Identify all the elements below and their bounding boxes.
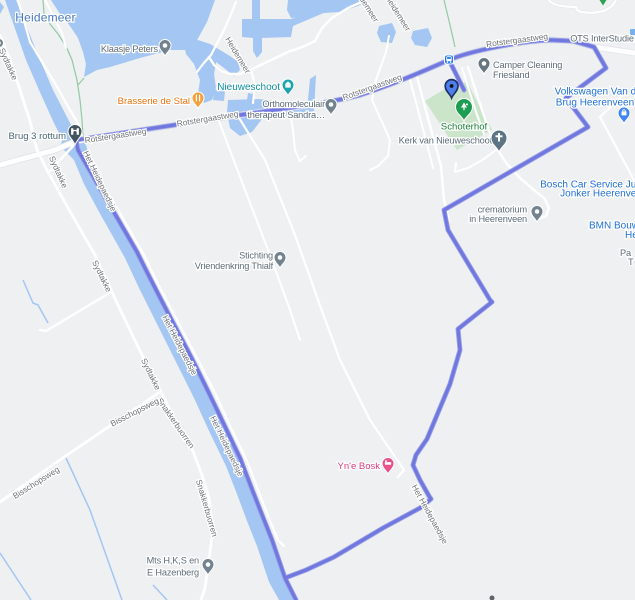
- svg-text:T: T: [628, 257, 634, 267]
- svg-text:Nieuweschoot: Nieuweschoot: [217, 82, 280, 93]
- svg-text:Volkswagen Van den: Volkswagen Van den: [555, 87, 635, 98]
- svg-text:Orthomoleculair: Orthomoleculair: [262, 99, 325, 109]
- svg-text:Yn'e Bosk: Yn'e Bosk: [338, 461, 381, 472]
- svg-text:OTS InterStudie: OTS InterStudie: [570, 34, 634, 44]
- svg-text:E Hazenberg: E Hazenberg: [147, 568, 199, 578]
- svg-text:Brasserie de Stal: Brasserie de Stal: [118, 96, 190, 107]
- svg-text:crematorium: crematorium: [478, 205, 528, 215]
- svg-text:therapeut Sandra…: therapeut Sandra…: [247, 110, 325, 120]
- svg-text:Brug 3 rottum: Brug 3 rottum: [8, 131, 66, 142]
- svg-text:Camper Cleaning: Camper Cleaning: [493, 60, 562, 70]
- svg-text:Mts H,K,S en: Mts H,K,S en: [147, 556, 199, 566]
- svg-text:Klaasje Peters: Klaasje Peters: [101, 44, 159, 54]
- svg-text:Kerk van Nieuweschoot: Kerk van Nieuweschoot: [399, 136, 493, 146]
- svg-text:Friesland: Friesland: [493, 70, 529, 80]
- svg-text:Heidemeer: Heidemeer: [15, 11, 76, 25]
- svg-text:Vriendenkring Thialf: Vriendenkring Thialf: [195, 261, 274, 271]
- svg-text:Stichting: Stichting: [239, 251, 273, 261]
- svg-text:Schoterhof: Schoterhof: [441, 122, 488, 133]
- svg-text:Jonker Heerenvee: Jonker Heerenvee: [560, 189, 635, 200]
- svg-text:in Heerenveen: in Heerenveen: [469, 214, 527, 224]
- svg-text:He: He: [625, 230, 635, 241]
